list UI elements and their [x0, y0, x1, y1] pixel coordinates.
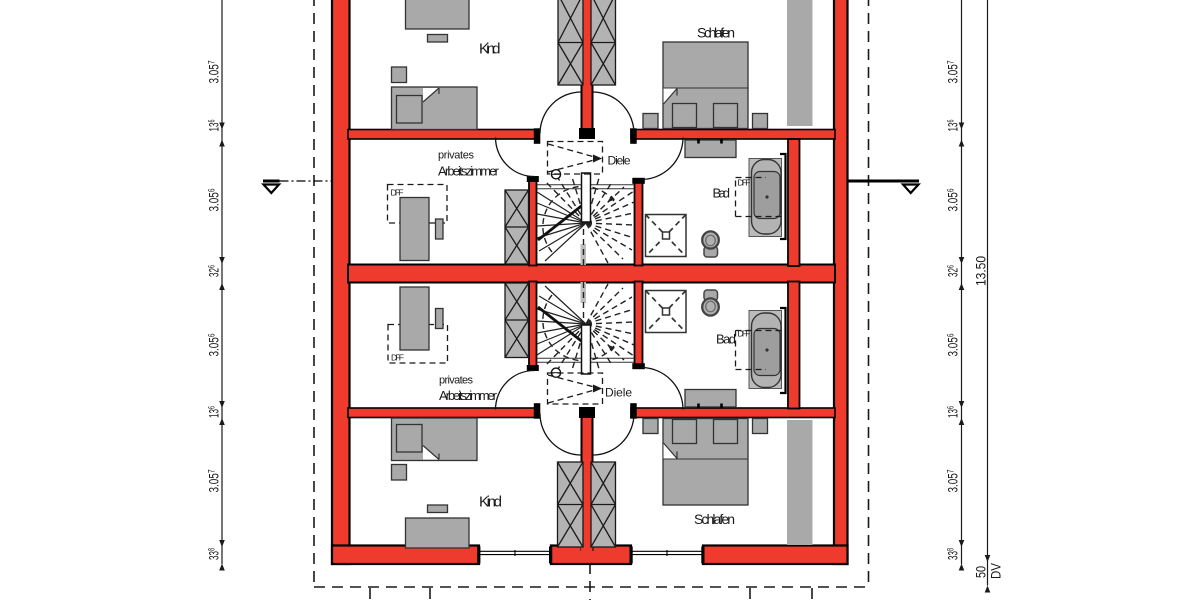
svg-text:Kind: Kind — [479, 41, 501, 58]
svg-text:Schlafen: Schlafen — [697, 25, 735, 41]
svg-text:50: 50 — [974, 566, 989, 578]
svg-text:Bad: Bad — [716, 332, 736, 347]
svg-text:Diele: Diele — [605, 386, 632, 400]
svg-text:DFF: DFF — [738, 329, 751, 339]
svg-text:DFF: DFF — [391, 188, 404, 198]
svg-text:Schlafen: Schlafen — [694, 511, 735, 527]
svg-text:Kind: Kind — [479, 494, 502, 511]
svg-text:13.50: 13.50 — [974, 256, 989, 286]
svg-text:privates: privates — [439, 375, 474, 387]
svg-text:Diele: Diele — [608, 154, 631, 168]
svg-text:Arbeitszimmer: Arbeitszimmer — [438, 163, 500, 178]
svg-text:DV: DV — [989, 563, 1004, 579]
svg-text:Bad: Bad — [713, 186, 731, 201]
svg-text:Arbeitszimmer: Arbeitszimmer — [439, 388, 498, 403]
svg-text:DFF: DFF — [391, 353, 404, 363]
svg-text:DFF: DFF — [738, 178, 751, 188]
svg-text:privates: privates — [438, 150, 475, 162]
